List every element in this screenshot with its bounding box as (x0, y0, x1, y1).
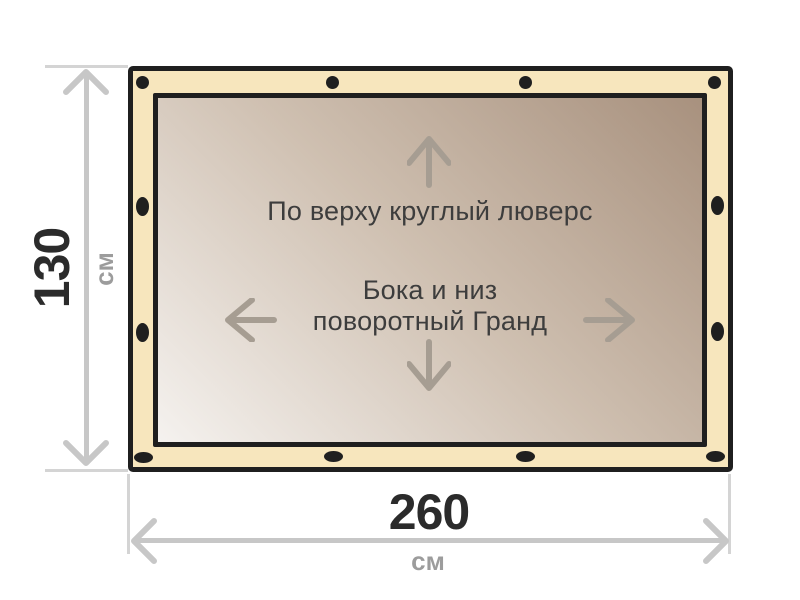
grommet-top-4-round (708, 76, 721, 89)
grommet-left-1-oval (136, 197, 149, 216)
height-unit: см (90, 234, 118, 304)
grommet-bottom-3-oval (516, 451, 535, 462)
height-value: 130 (26, 188, 78, 348)
center-note-line2: поворотный Гранд (158, 306, 702, 337)
grommet-top-3-round (519, 76, 532, 89)
grommet-top-2-round (326, 76, 339, 89)
grommet-right-1-oval (711, 196, 724, 215)
width-arrowhead-left-icon (128, 517, 158, 570)
center-note-line1: Бока и низ (158, 275, 702, 306)
grommet-bottom-1-oval (134, 452, 153, 463)
grommet-right-2-oval (711, 322, 724, 341)
width-value: 260 (329, 486, 529, 538)
tarp-dimension-diagram: По верху круглый люверс Бока и низ повор… (0, 0, 800, 600)
grommet-bottom-4-oval (706, 451, 725, 462)
width-arrowhead-right-icon (702, 517, 732, 570)
grommet-left-2-oval (136, 323, 149, 342)
grommet-top-1-round (136, 76, 149, 89)
top-edge-note: По верху круглый люверс (158, 196, 702, 227)
width-unit: см (378, 547, 478, 575)
arrow-up-icon (407, 133, 451, 189)
height-arrowhead-down-icon (62, 439, 110, 474)
center-note: Бока и низ поворотный Гранд (158, 275, 702, 337)
arrow-down-icon (407, 338, 451, 394)
height-arrowhead-up-icon (62, 66, 110, 101)
grommet-bottom-2-oval (324, 451, 343, 462)
